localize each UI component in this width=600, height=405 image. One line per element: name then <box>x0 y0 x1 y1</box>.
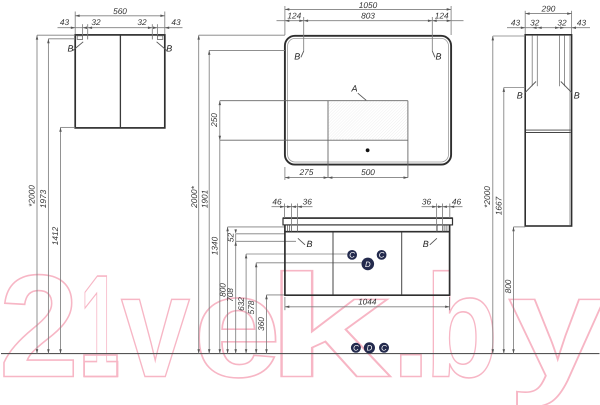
svg-text:y: y <box>508 245 600 405</box>
svg-text:B: B <box>306 239 312 249</box>
svg-text:B: B <box>435 52 441 62</box>
svg-text:2000*: 2000* <box>189 185 199 208</box>
svg-text:1044: 1044 <box>358 296 377 306</box>
svg-text:C: C <box>379 251 385 260</box>
svg-text:124: 124 <box>287 10 301 20</box>
svg-text:1340: 1340 <box>209 236 219 255</box>
svg-text:632: 632 <box>236 297 246 311</box>
svg-text:52: 52 <box>226 233 236 243</box>
svg-text:*2000: *2000 <box>482 186 492 208</box>
svg-text:32: 32 <box>137 17 147 27</box>
svg-text:43: 43 <box>577 17 587 27</box>
svg-text:250: 250 <box>209 113 219 128</box>
svg-text:D: D <box>365 260 371 269</box>
svg-text:B: B <box>67 44 73 54</box>
svg-text:32: 32 <box>557 17 567 27</box>
svg-text:360: 360 <box>256 317 266 331</box>
svg-text:800: 800 <box>503 279 513 293</box>
svg-text:B: B <box>574 90 580 100</box>
svg-text:578: 578 <box>246 300 256 314</box>
svg-text:b: b <box>425 245 498 405</box>
svg-text:B: B <box>166 44 172 54</box>
svg-text:560: 560 <box>113 6 127 16</box>
svg-text:708: 708 <box>225 288 235 302</box>
svg-text:43: 43 <box>60 17 70 27</box>
svg-text:B: B <box>517 90 523 100</box>
svg-text:1: 1 <box>80 245 120 405</box>
svg-text:36: 36 <box>303 197 313 207</box>
svg-text:43: 43 <box>511 17 521 27</box>
svg-text:36: 36 <box>422 197 432 207</box>
svg-text:275: 275 <box>298 167 313 177</box>
svg-text:C: C <box>349 251 355 260</box>
svg-text:32: 32 <box>530 17 540 27</box>
svg-text:C: C <box>381 344 387 353</box>
svg-text:43: 43 <box>171 17 181 27</box>
svg-text:46: 46 <box>452 197 462 207</box>
svg-text:32: 32 <box>91 17 101 27</box>
svg-text:2: 2 <box>0 245 79 405</box>
svg-text:1901: 1901 <box>200 190 210 208</box>
svg-text:*2000: *2000 <box>27 185 37 207</box>
svg-text:A: A <box>350 84 357 94</box>
svg-text:124: 124 <box>435 10 449 20</box>
svg-text:B: B <box>423 239 429 249</box>
svg-text:1050: 1050 <box>359 0 378 10</box>
svg-text:46: 46 <box>272 197 282 207</box>
svg-text:803: 803 <box>361 10 375 20</box>
svg-text:1412: 1412 <box>50 226 60 245</box>
svg-text:500: 500 <box>361 167 375 177</box>
svg-text:B: B <box>294 52 300 62</box>
svg-text:1667: 1667 <box>493 196 503 215</box>
svg-text:v: v <box>121 245 190 405</box>
svg-text:290: 290 <box>540 3 555 13</box>
svg-text:D: D <box>367 344 373 353</box>
svg-text:C: C <box>353 344 359 353</box>
svg-text:1973: 1973 <box>38 189 48 208</box>
